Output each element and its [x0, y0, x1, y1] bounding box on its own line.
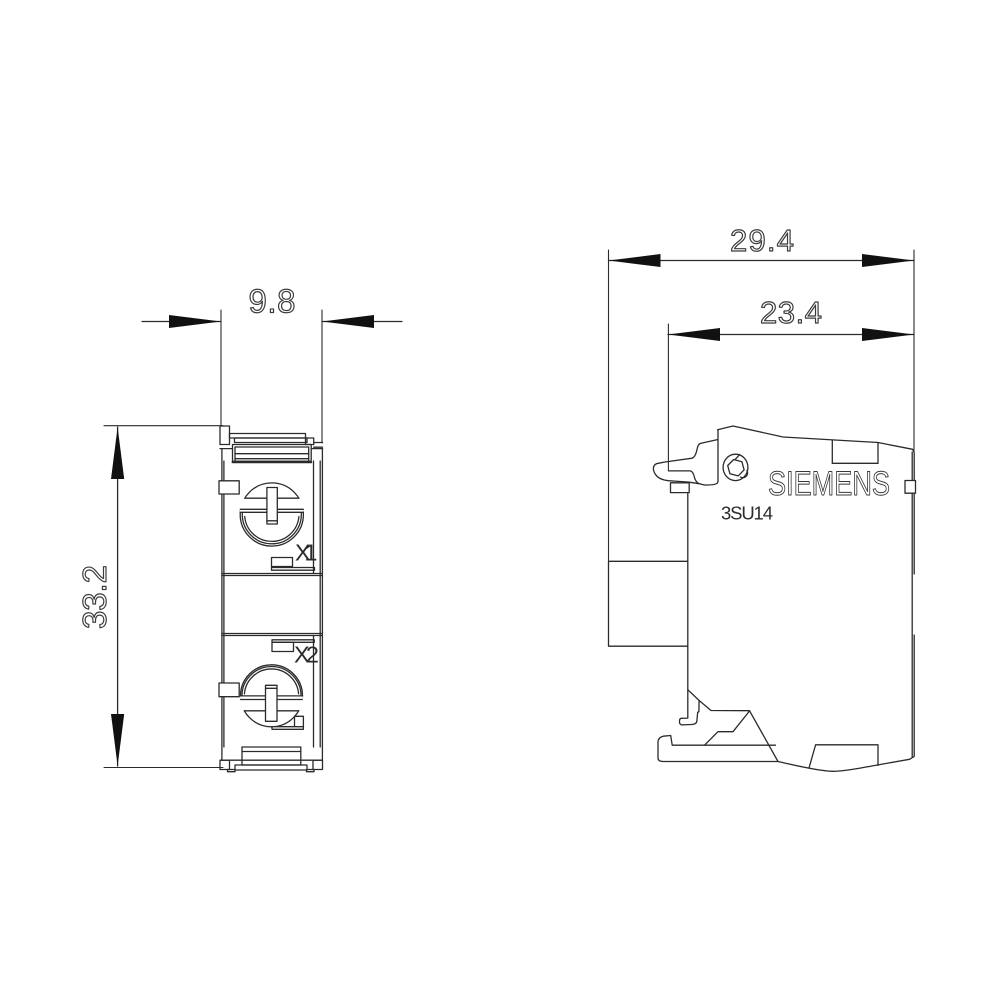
svg-text:9.8: 9.8 [249, 283, 296, 320]
svg-text:3SU14: 3SU14 [721, 503, 773, 524]
svg-text:23.4: 23.4 [760, 295, 822, 330]
svg-text:X2: X2 [294, 642, 319, 668]
svg-text:SIEMENS: SIEMENS [768, 465, 890, 503]
svg-text:33.2: 33.2 [76, 565, 113, 629]
svg-text:29.4: 29.4 [730, 223, 794, 258]
svg-text:X1: X1 [295, 539, 318, 565]
